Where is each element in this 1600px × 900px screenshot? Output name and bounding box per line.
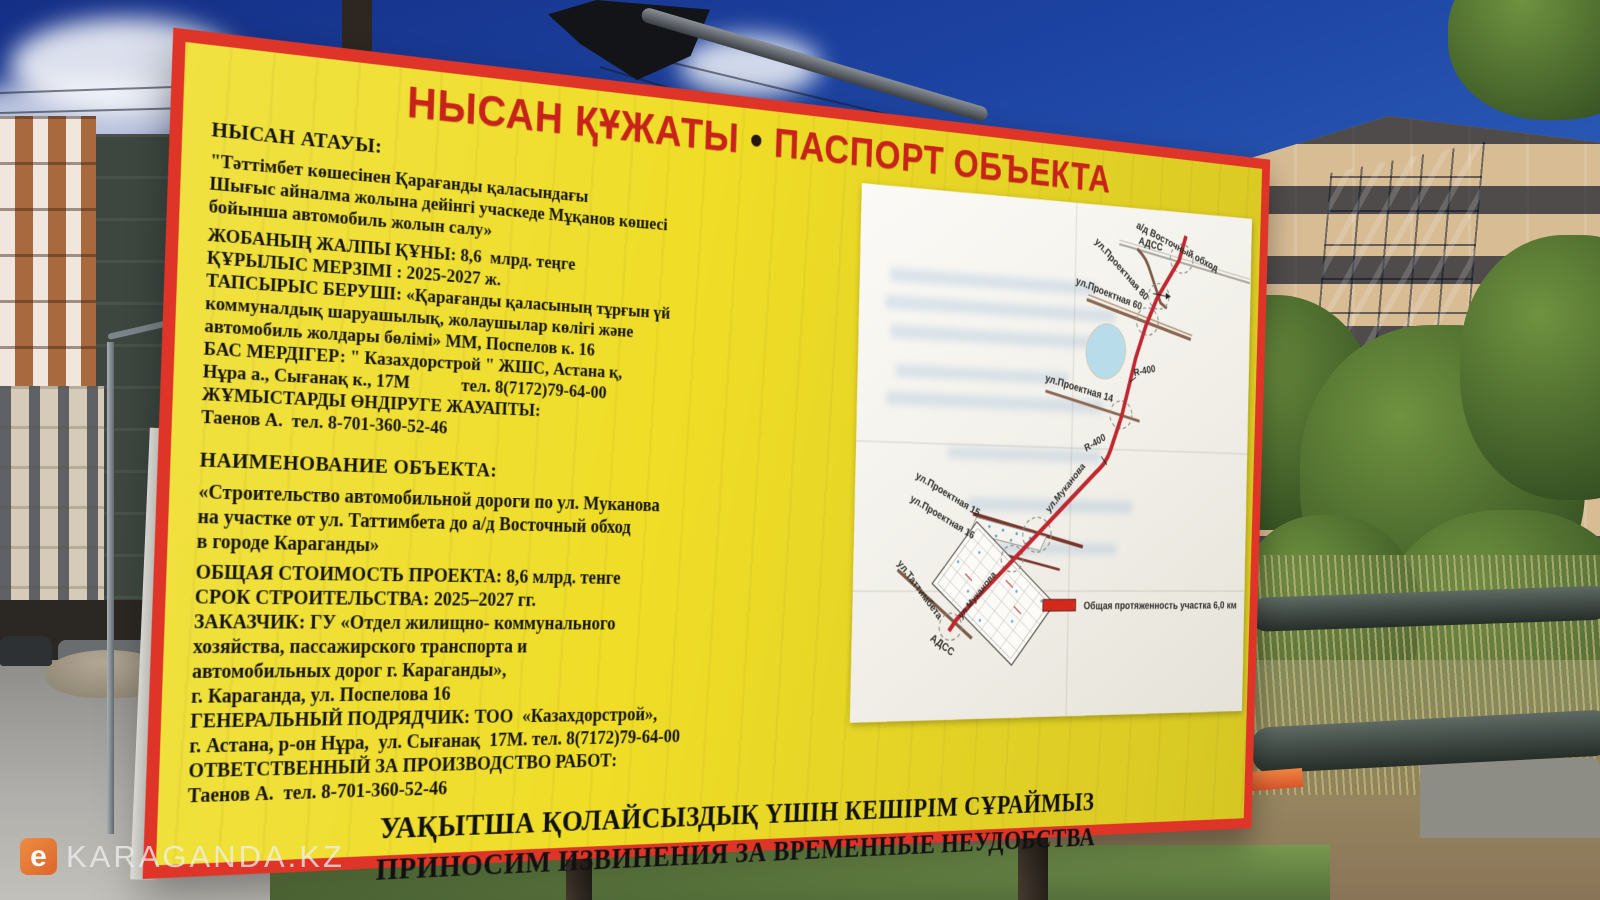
legend-swatch xyxy=(1043,599,1076,611)
billboard-text-column: НЫСАН АТАУЫ: "Тәттімбет көшесінен Қараға… xyxy=(187,112,864,809)
text-line: ЗАКАЗЧИК: ГУ «Отдел жилищно- коммунально… xyxy=(193,610,850,636)
route-map-sheet: а/д Восточный обход АДСС ул.Проектная 80… xyxy=(850,183,1252,723)
map-label-tattimbeta: ул.Таттимбета xyxy=(895,557,944,621)
construction-info-billboard: НЫСАН ҚҰЖАТЫ•ПАСПОРТ ОБЪЕКТА НЫСАН АТАУЫ… xyxy=(143,28,1271,879)
legend-label: Общая протяженность участка 6,0 км xyxy=(1083,599,1236,612)
street-scene: НЫСАН ҚҰЖАТЫ•ПАСПОРТ ОБЪЕКТА НЫСАН АТАУЫ… xyxy=(0,0,1600,900)
watermark: e KARAGANDA.KZ xyxy=(20,838,345,875)
route-map-svg: а/д Восточный обход АДСС ул.Проектная 80… xyxy=(850,183,1252,723)
watermark-text: KARAGANDA.KZ xyxy=(66,839,345,875)
map-label-r400: R-400 xyxy=(1083,431,1107,454)
billboard-content: НЫСАН АТАУЫ: "Тәттімбет көшесінен Қараға… xyxy=(158,103,1261,810)
concrete-block xyxy=(1420,758,1600,838)
map-label-r400: R-400 xyxy=(1133,363,1156,379)
arrow-head xyxy=(1166,293,1171,300)
billboard-map-column: а/д Восточный обход АДСС ул.Проектная 80… xyxy=(845,181,1254,788)
title-separator-dot: • xyxy=(739,115,775,165)
map-label-adss-bottom: АДСС xyxy=(928,631,956,659)
lake xyxy=(1081,317,1131,385)
parked-car xyxy=(0,636,52,666)
text-line: хозяйства, пассажирского транспорта и xyxy=(193,635,851,660)
karaganda-kz-logo: e xyxy=(20,838,57,875)
street-lamp-pole xyxy=(107,342,114,834)
